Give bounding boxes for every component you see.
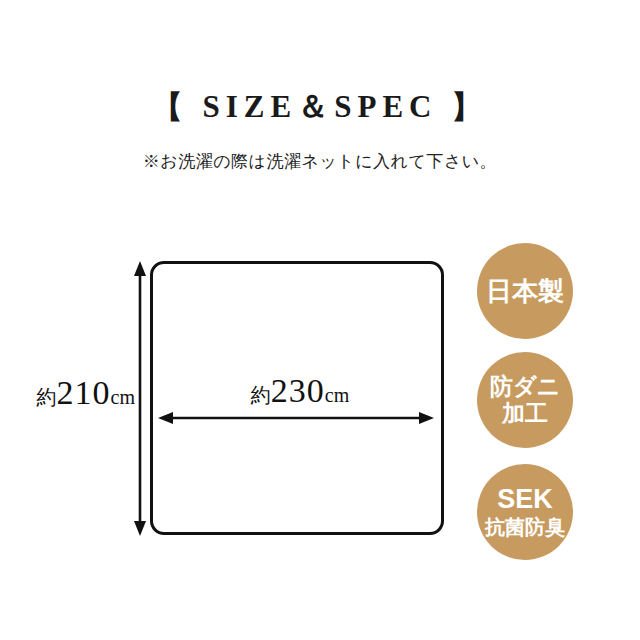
page-title: 【 SIZE＆SPEC 】 xyxy=(0,86,640,128)
badge-sek-line-1: SEK xyxy=(497,484,553,516)
badge-anti-mite: 防ダニ 加工 xyxy=(477,352,573,448)
badge-made-in-japan-label: 日本製 xyxy=(486,276,564,307)
height-dimension-unit: cm xyxy=(111,386,135,408)
width-dimension-label: 約230cm xyxy=(226,372,374,410)
washing-note: ※お洗濯の際は洗濯ネットに入れて下さい。 xyxy=(0,150,640,173)
width-dimension-unit: cm xyxy=(325,384,349,406)
badge-sek-antibacterial: SEK 抗菌防臭 xyxy=(477,464,573,560)
badge-anti-mite-line-1: 防ダニ xyxy=(490,373,560,400)
badge-anti-mite-line-2: 加工 xyxy=(502,400,548,427)
width-dimension-prefix: 約 xyxy=(251,384,271,406)
width-dimension-value: 230 xyxy=(271,372,325,409)
badge-sek-line-2: 抗菌防臭 xyxy=(485,516,565,540)
height-dimension-value: 210 xyxy=(57,374,111,411)
horizontal-dimension-arrow-icon xyxy=(158,410,434,426)
height-dimension-prefix: 約 xyxy=(37,386,57,408)
badge-made-in-japan: 日本製 xyxy=(477,243,573,339)
height-dimension-label: 約210cm xyxy=(25,374,135,412)
size-spec-infographic: 【 SIZE＆SPEC 】 ※お洗濯の際は洗濯ネットに入れて下さい。 約210c… xyxy=(0,0,640,640)
